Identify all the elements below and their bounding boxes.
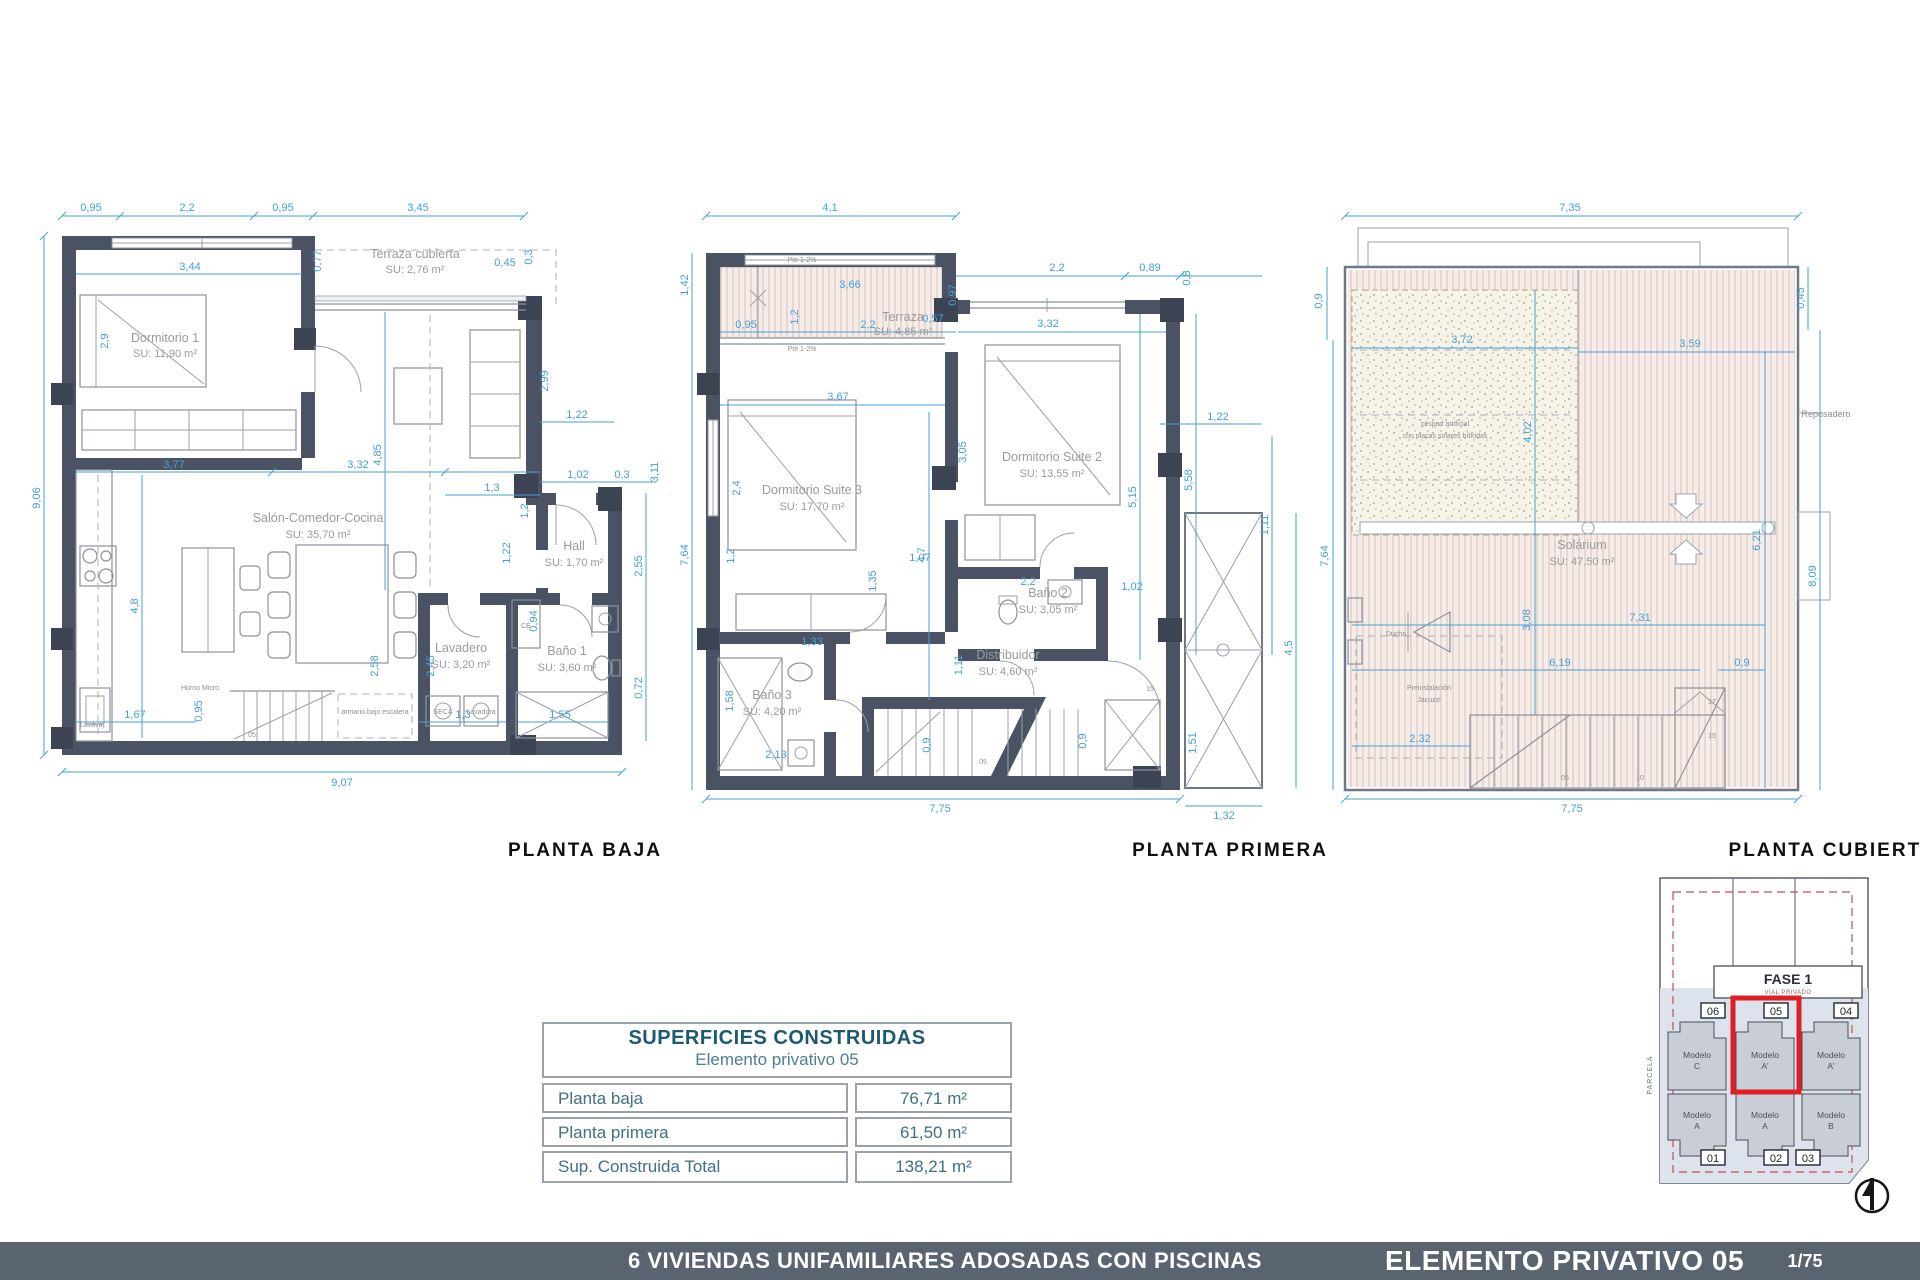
dim-label: 1,67 bbox=[124, 709, 145, 721]
dim-label: 1,11 bbox=[953, 655, 965, 676]
house-footprints bbox=[1668, 1022, 1860, 1156]
room-label-hall: Hall bbox=[563, 539, 585, 553]
dim-label: 3,05 bbox=[957, 441, 969, 462]
dim-label: 2,13 bbox=[765, 749, 786, 761]
dim-label: 5,58 bbox=[1183, 469, 1195, 490]
label-cesped: con placas solares híbridas bbox=[1403, 433, 1488, 440]
stair-number: 05 bbox=[1561, 775, 1569, 782]
plot-number: 03 bbox=[1802, 1153, 1814, 1165]
room-area: SU: 2,76 m² bbox=[386, 264, 445, 276]
plot-number: 04 bbox=[1840, 1006, 1852, 1018]
dimension-labels: 0,95 2,2 0,95 3,45 0,45 3,44 0,77 0,3 9,… bbox=[31, 202, 661, 789]
room-label-terraza-cubierta: Terraza cubierta bbox=[370, 247, 460, 261]
dim-label: 7,75 bbox=[1561, 803, 1582, 815]
room-label-terraza: Terraza bbox=[882, 310, 924, 324]
dim-label: 0,57 bbox=[922, 313, 943, 325]
plan-title-planta-baja: PLANTA BAJA bbox=[455, 840, 715, 862]
dim-label: 4,5 bbox=[1283, 640, 1295, 655]
table-row-label: Sup. Construida Total bbox=[542, 1151, 848, 1183]
dim-label: 0,9 bbox=[1313, 293, 1325, 308]
table-row-value: 61,50 m² bbox=[855, 1117, 1012, 1147]
dim-label: 1,02 bbox=[567, 469, 588, 481]
model-label: Modelo bbox=[1683, 1050, 1711, 1060]
dim-label: 2,32 bbox=[1409, 733, 1430, 745]
room-area: SU: 4,85 m² bbox=[874, 326, 933, 338]
label-ducha: Ducha bbox=[1386, 631, 1406, 638]
room-label-suite-2: Dormitorio Suite 2 bbox=[1002, 450, 1102, 464]
dim-label: 0,95 bbox=[272, 202, 293, 214]
label-ce: CE bbox=[521, 623, 531, 630]
dim-label: 9,06 bbox=[31, 487, 43, 508]
stair-number: 10 bbox=[1636, 775, 1644, 782]
label-seca: SECA bbox=[433, 709, 452, 716]
label-reposadero: Reposadero bbox=[1801, 409, 1850, 419]
stairs-icon bbox=[230, 691, 412, 741]
dim-label: 1,22 bbox=[566, 409, 587, 421]
model-variant: A bbox=[1762, 1121, 1768, 1131]
dim-label: 0,9 bbox=[1734, 657, 1749, 669]
dim-label: 1,58 bbox=[724, 690, 736, 711]
table-title: SUPERFICIES CONSTRUIDAS bbox=[544, 1027, 1010, 1050]
table-row-value: 138,21 m² bbox=[855, 1151, 1012, 1183]
plot-number: 05 bbox=[1770, 1006, 1782, 1018]
dim-label: 8,09 bbox=[1807, 565, 1819, 586]
room-area: SU: 13,55 m² bbox=[1020, 468, 1085, 480]
plan-planta-primera: 4,1 1,42 7,64 3,66 0,95 1,2 2,2 0,57 0,9… bbox=[685, 195, 1340, 815]
dim-label: 5,15 bbox=[1127, 486, 1139, 507]
dim-label: 3,77 bbox=[163, 459, 184, 471]
room-area: SU: 3,05 m² bbox=[1019, 604, 1078, 616]
dim-label: 1,02 bbox=[1121, 581, 1142, 593]
plan-planta-baja: 0,95 2,2 0,95 3,45 0,45 3,44 0,77 0,3 9,… bbox=[30, 195, 680, 810]
room-label-salon: Salón-Comedor-Cocina bbox=[253, 511, 384, 525]
model-variant: A bbox=[1694, 1121, 1700, 1131]
dim-label: 1,35 bbox=[867, 570, 879, 591]
dim-label: 0,95 bbox=[735, 319, 756, 331]
label-lavadora: Lavadora bbox=[466, 709, 495, 716]
site-key-plan: FASE 1 VIAL PRIVADO ModeloC ModeloA' Mod… bbox=[1630, 865, 1910, 1225]
dim-label: 3,72 bbox=[1451, 334, 1472, 346]
label-lavavajillas: Lavavaj. bbox=[80, 722, 106, 729]
room-area: SU: 47,50 m² bbox=[1550, 556, 1615, 568]
room-label-lavadero: Lavadero bbox=[435, 641, 487, 655]
label-pendiente: Pte 1-2% bbox=[788, 257, 817, 264]
dim-label: 0,45 bbox=[1795, 287, 1807, 308]
label-jacuzzi: Jacuzzi bbox=[1417, 697, 1441, 704]
dim-label: 3,44 bbox=[179, 261, 200, 273]
dim-label: 3,45 bbox=[407, 202, 428, 214]
room-label-solarium: Solárium bbox=[1557, 538, 1606, 552]
room-area: SU: 11,90 m² bbox=[133, 348, 197, 360]
dim-label: 2,2 bbox=[179, 202, 194, 214]
table-row-value: 76,71 m² bbox=[855, 1083, 1012, 1113]
dim-label: 2,9 bbox=[99, 333, 111, 348]
model-label: Modelo bbox=[1751, 1050, 1779, 1060]
label-armario: armario bajo escalera bbox=[341, 709, 408, 716]
dim-label: 7,31 bbox=[1629, 612, 1650, 624]
stair-number: 15 bbox=[1708, 733, 1716, 740]
model-label: Modelo bbox=[1817, 1050, 1845, 1060]
north-arrow-icon bbox=[1856, 1178, 1888, 1212]
room-area: SU: 4,20 m² bbox=[743, 706, 802, 718]
room-area: SU: 3,60 m² bbox=[538, 662, 597, 674]
footer-bar: 6 VIVIENDAS UNIFAMILIARES ADOSADAS CON P… bbox=[0, 1242, 1920, 1280]
model-variant: C bbox=[1694, 1061, 1700, 1071]
sheet-title: ELEMENTO PRIVATIVO 05 bbox=[1385, 1242, 1730, 1280]
plot-number: 02 bbox=[1770, 1153, 1782, 1165]
dim-label: 2,2 bbox=[1049, 262, 1064, 274]
dim-label: 1,32 bbox=[1213, 810, 1234, 822]
dim-label: 0,77 bbox=[312, 250, 324, 271]
dim-label: 7,64 bbox=[1319, 545, 1331, 566]
dim-label: 1,07 bbox=[909, 552, 930, 564]
dim-label: 0,89 bbox=[1139, 262, 1160, 274]
room-area: SU: 4,60 m² bbox=[979, 666, 1038, 678]
dim-label: 4,8 bbox=[129, 598, 141, 613]
plot-number: 01 bbox=[1707, 1153, 1719, 1165]
table-row-label: Planta primera bbox=[542, 1117, 848, 1147]
model-variant: A' bbox=[1827, 1061, 1835, 1071]
plan-title-planta-cubierta: PLANTA CUBIERTA bbox=[1702, 840, 1920, 862]
dim-label: 1,2 bbox=[789, 309, 801, 324]
dim-label: 3,08 bbox=[1521, 609, 1533, 630]
model-variant: A' bbox=[1761, 1061, 1769, 1071]
model-variant: B bbox=[1828, 1121, 1834, 1131]
dim-label: 3,11 bbox=[649, 462, 661, 483]
dim-label: 7,64 bbox=[679, 544, 691, 565]
dim-label: 2,58 bbox=[369, 655, 381, 676]
dim-label: 3,66 bbox=[839, 279, 860, 291]
dim-label: 1,33 bbox=[801, 636, 822, 648]
dim-label: 3,32 bbox=[347, 459, 368, 471]
table-row-label: Planta baja bbox=[542, 1083, 848, 1113]
room-label-dormitorio-1: Dormitorio 1 bbox=[131, 331, 199, 345]
table-subtitle: Elemento privativo 05 bbox=[544, 1050, 1010, 1070]
room-label-distribuidor: Distribuidor bbox=[976, 648, 1039, 662]
dim-label: 0,72 bbox=[633, 677, 645, 698]
stair-number: 15 bbox=[1146, 686, 1154, 693]
dim-label: 0,3 bbox=[614, 469, 629, 481]
dim-label: 0,9 bbox=[921, 737, 933, 752]
stair-number: 17 bbox=[1708, 699, 1716, 706]
room-label-bano-1: Baño 1 bbox=[547, 644, 587, 658]
label-jacuzzi: Preinstalación bbox=[1407, 685, 1451, 692]
dim-label: 0,95 bbox=[193, 700, 205, 721]
room-label-bano-3: Baño 3 bbox=[752, 688, 792, 702]
dim-label: 9,07 bbox=[331, 777, 352, 789]
label-pendiente: Pte 1-2% bbox=[788, 346, 817, 353]
dim-label: 4,1 bbox=[822, 202, 837, 214]
plan-planta-cubierta: 7,35 0,9 7,64 0,45 8,09 3,72 3,59 4,02 6… bbox=[1300, 195, 1910, 820]
room-label-suite-3: Dormitorio Suite 3 bbox=[762, 483, 862, 497]
dim-label: 4,85 bbox=[372, 444, 384, 465]
stair-number: 05 bbox=[979, 759, 987, 766]
dim-label: 6,21 bbox=[1751, 529, 1763, 550]
room-area: SU: 17,70 m² bbox=[780, 501, 845, 513]
project-title: 6 VIVIENDAS UNIFAMILIARES ADOSADAS CON P… bbox=[628, 1242, 1224, 1280]
dim-label: 6,19 bbox=[1549, 657, 1570, 669]
dim-label: 2,99 bbox=[539, 370, 551, 391]
plan-title-planta-primera: PLANTA PRIMERA bbox=[1100, 840, 1360, 862]
vial-privado-label: VIAL PRIVADO bbox=[1764, 990, 1811, 996]
dim-label: 4,02 bbox=[1522, 421, 1534, 442]
model-label: Modelo bbox=[1683, 1110, 1711, 1120]
drawing-sheet: 0,95 2,2 0,95 3,45 0,45 3,44 0,77 0,3 9,… bbox=[0, 0, 1920, 1280]
parcela-label: PARCELA bbox=[1647, 1055, 1654, 1094]
room-area: SU: 1,70 m² bbox=[545, 557, 604, 569]
dim-label: 7,75 bbox=[929, 803, 950, 815]
dim-label: 3,59 bbox=[1679, 338, 1700, 350]
model-label: Modelo bbox=[1817, 1110, 1845, 1120]
dim-label: 7,35 bbox=[1559, 202, 1580, 214]
dim-label: 0,9 bbox=[1077, 733, 1089, 748]
stair-number: 05 bbox=[248, 732, 256, 739]
dim-label: 1,11 bbox=[1259, 515, 1271, 536]
dim-label: 0,45 bbox=[494, 257, 515, 269]
room-area: SU: 3,20 m² bbox=[432, 659, 491, 671]
dim-label: 1,55 bbox=[549, 709, 570, 721]
model-label: Modelo bbox=[1751, 1110, 1779, 1120]
dim-label: 1,22 bbox=[1207, 411, 1228, 423]
dim-label: 2,4 bbox=[731, 480, 743, 495]
dim-label: 1,42 bbox=[679, 274, 691, 295]
room-area: SU: 35,70 m² bbox=[286, 529, 351, 541]
dim-label: 0,95 bbox=[80, 202, 101, 214]
dim-label: 0,8 bbox=[1181, 270, 1193, 285]
dim-label: 1,51 bbox=[1187, 732, 1199, 753]
fase-label: FASE 1 bbox=[1764, 971, 1812, 987]
dim-label: 1,2 bbox=[519, 503, 531, 518]
dim-label: 0,97 bbox=[947, 284, 959, 305]
sheet-scale: 1/75 bbox=[1770, 1242, 1840, 1280]
dim-label: 2,55 bbox=[633, 555, 645, 576]
dim-label: 1,2 bbox=[725, 548, 737, 563]
dim-label: 1,22 bbox=[501, 542, 513, 563]
dim-label: 3,32 bbox=[1037, 318, 1058, 330]
room-label-bano-2: Baño 2 bbox=[1028, 586, 1068, 600]
dim-label: 3,67 bbox=[827, 391, 848, 403]
plot-number: 06 bbox=[1707, 1006, 1719, 1018]
dim-label: 0,3 bbox=[523, 249, 535, 264]
label-cesped: césped artificial bbox=[1421, 421, 1470, 428]
label-horno-micro: Horno Micro bbox=[181, 685, 219, 692]
dim-label: 1,3 bbox=[484, 482, 499, 494]
